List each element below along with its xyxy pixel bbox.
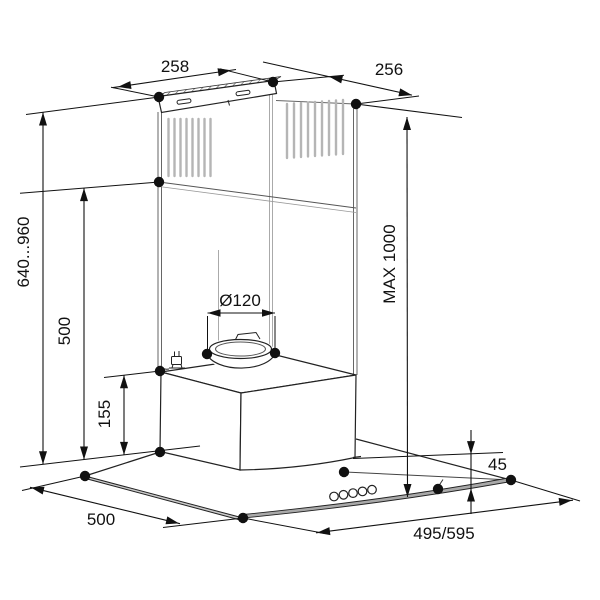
dim-label-500-vertical: 500 bbox=[55, 317, 74, 345]
dim-body-height: 155 bbox=[95, 371, 160, 455]
telescopic-seam bbox=[159, 182, 356, 208]
dim-label-500-depth: 500 bbox=[87, 510, 115, 529]
dim-top-depth: 256 bbox=[263, 60, 419, 104]
control-buttons bbox=[330, 485, 377, 500]
dim-label-max-1000: MAX 1000 bbox=[380, 224, 399, 303]
dim-label-256: 256 bbox=[375, 60, 403, 79]
dim-label-640-960: 640...960 bbox=[14, 217, 33, 288]
wall-bracket bbox=[158, 77, 281, 113]
control-button bbox=[330, 492, 339, 501]
plug-body bbox=[172, 357, 182, 365]
telescopic-seam2 bbox=[159, 187, 356, 213]
dim-chimney-lower-height: 500 bbox=[20, 182, 159, 460]
glass-back-left-edge bbox=[85, 452, 160, 476]
control-button bbox=[349, 489, 358, 498]
dim-canopy-depth: 500 bbox=[22, 476, 243, 529]
control-button bbox=[368, 485, 377, 494]
power-plug-icon bbox=[161, 351, 186, 369]
chimney-duct bbox=[158, 92, 357, 375]
vent-slots-right bbox=[287, 100, 343, 158]
dim-label-155: 155 bbox=[95, 400, 114, 428]
hood-body bbox=[160, 355, 361, 470]
control-button bbox=[358, 487, 367, 496]
dim-label-45: 45 bbox=[488, 455, 507, 474]
control-button bbox=[339, 491, 348, 500]
dim-label-258: 258 bbox=[161, 57, 189, 76]
installation-diagram: 258 256 640...960 500 155 bbox=[0, 0, 600, 600]
diagram-canvas: 258 256 640...960 500 155 bbox=[0, 0, 600, 600]
duct-collar bbox=[207, 333, 276, 371]
dim-label-diameter-120: Ø120 bbox=[219, 291, 261, 310]
dim-max-height: MAX 1000 bbox=[356, 104, 462, 497]
vent-slots-left bbox=[169, 119, 211, 176]
dim-label-495-595: 495/595 bbox=[413, 524, 474, 543]
